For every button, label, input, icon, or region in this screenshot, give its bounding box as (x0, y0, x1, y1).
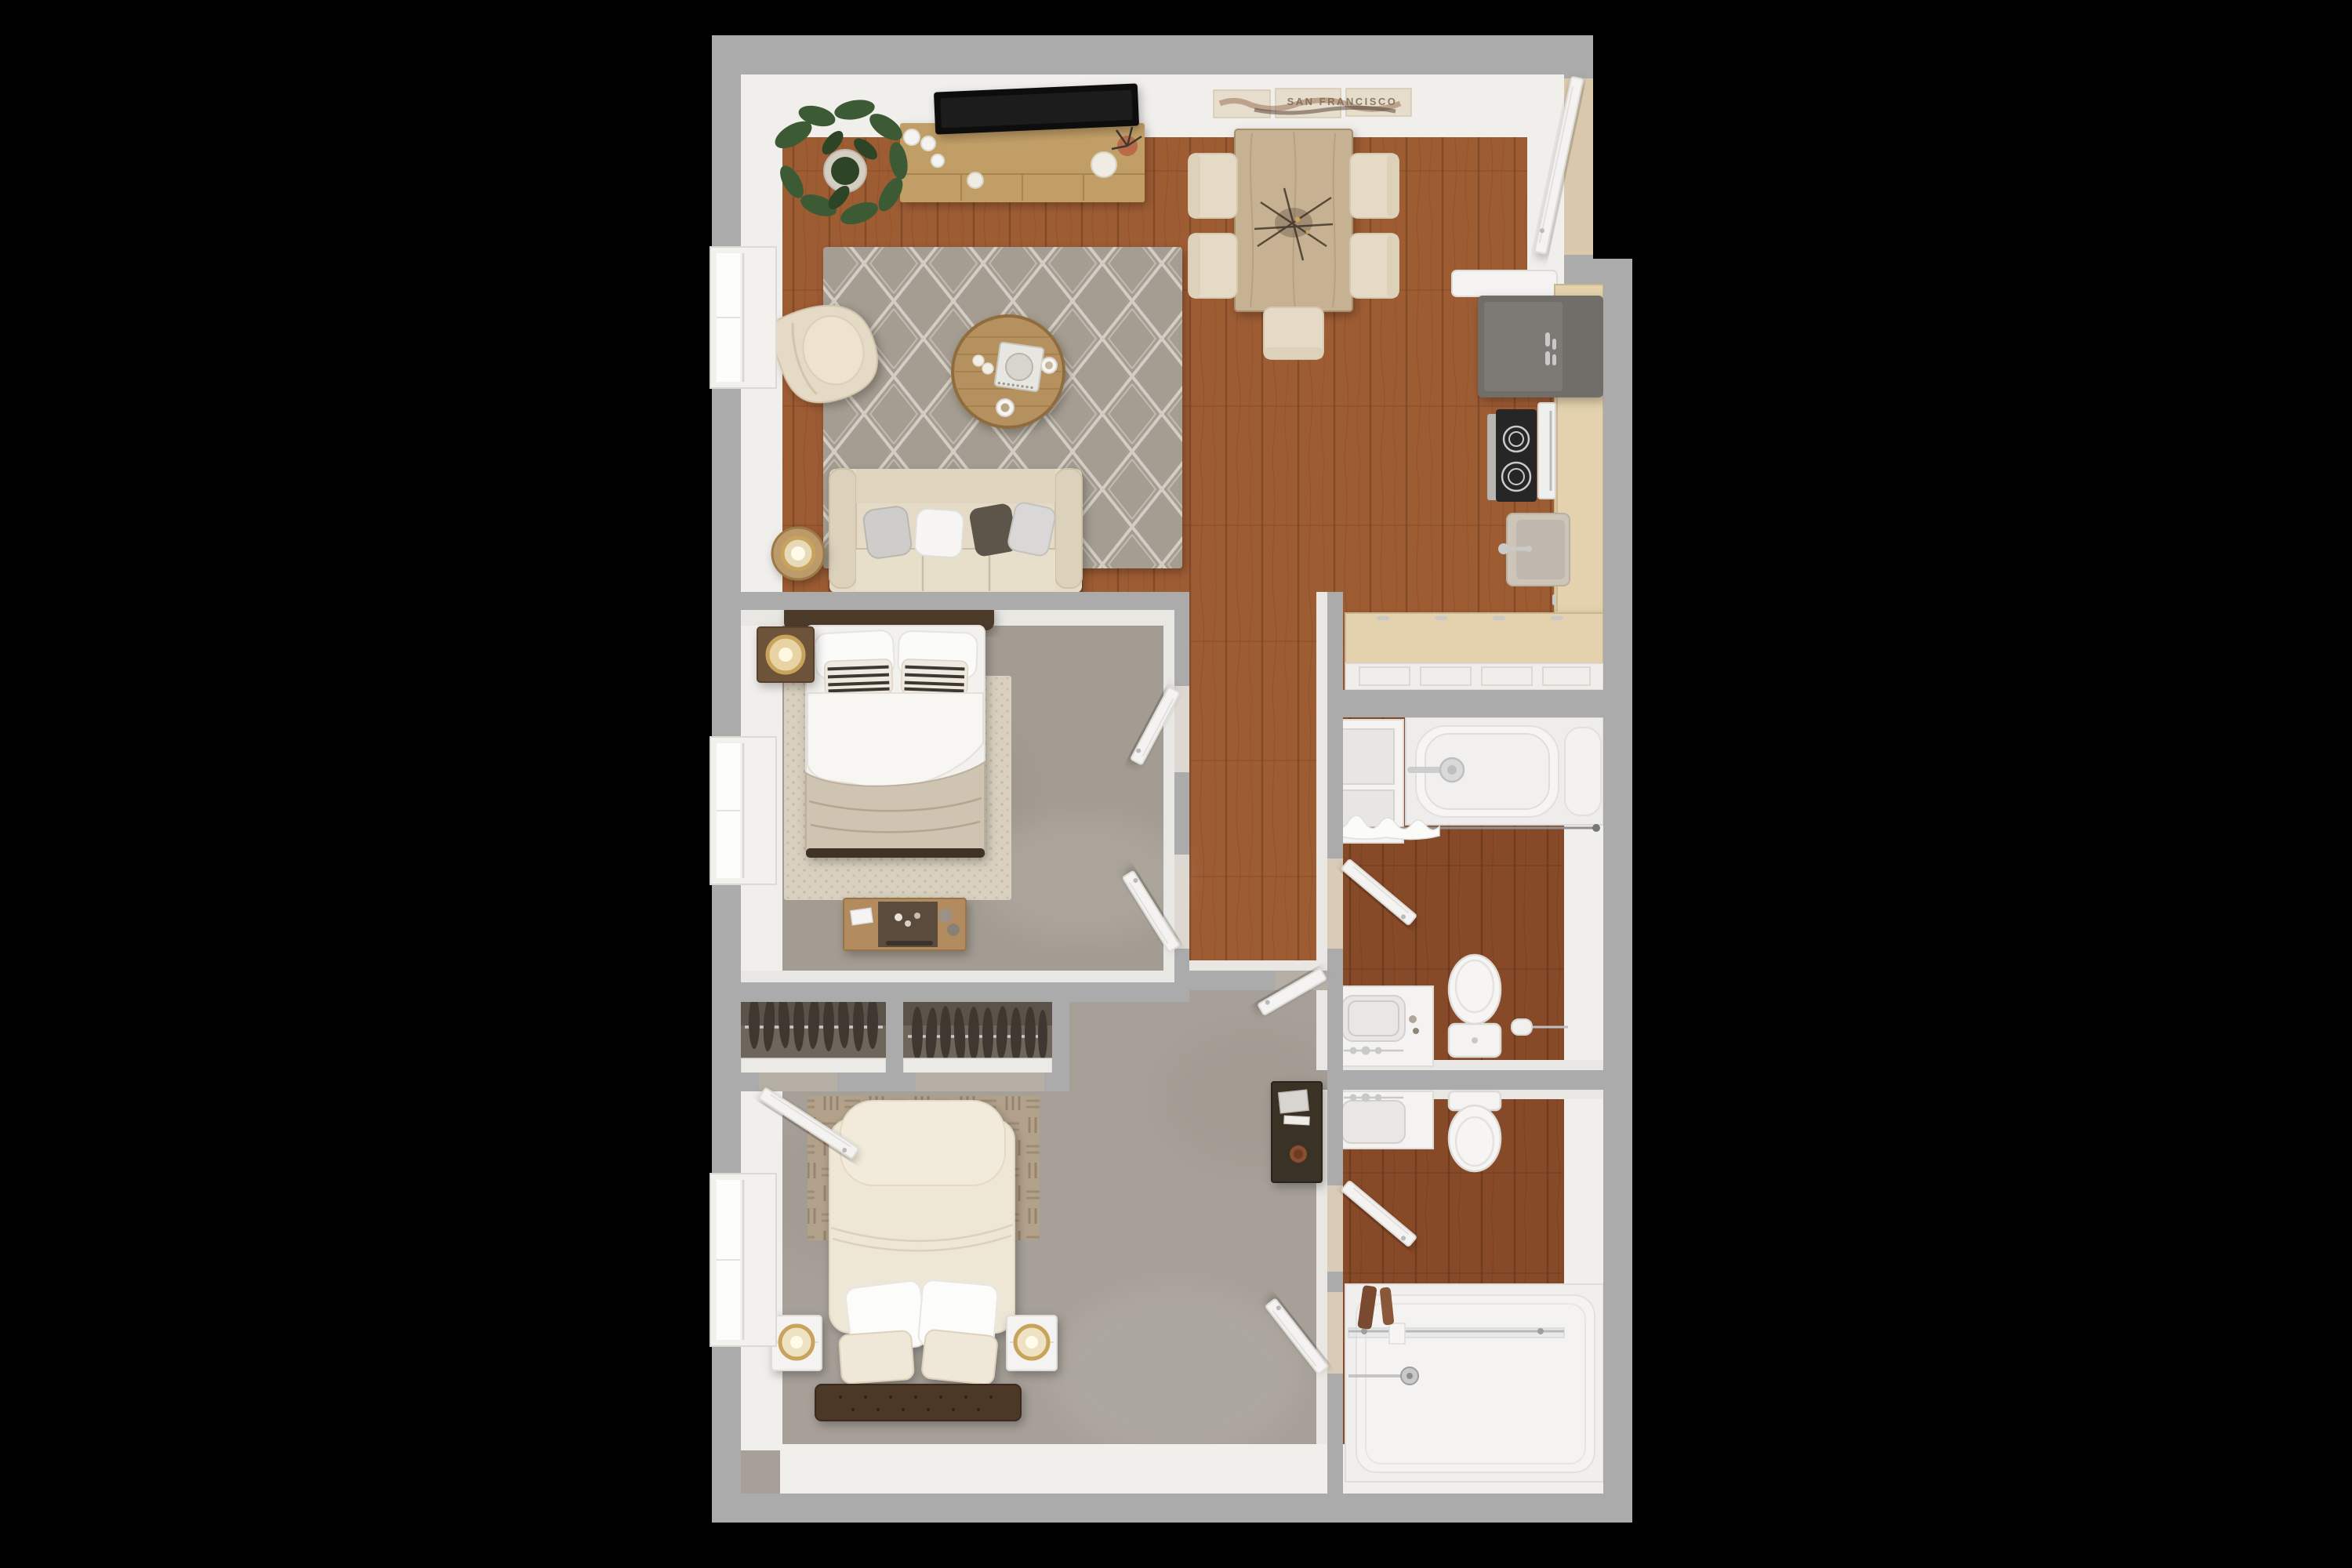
walk-in-shower (1345, 1284, 1603, 1482)
cabinet-handle (1552, 594, 1556, 605)
cup-and-saucer (1041, 358, 1057, 373)
bedroom-1-window (710, 737, 776, 884)
books (1279, 1090, 1309, 1113)
dining-chair (1264, 307, 1323, 359)
cookie (982, 363, 993, 374)
drawer-handle (1377, 616, 1389, 620)
door-threshold (1174, 855, 1189, 949)
fridge-handle (1545, 332, 1550, 347)
screenshot-canvas: SAN FRANCISCO (0, 0, 2352, 1568)
shower-glass-panel (1348, 1328, 1564, 1338)
bathroom-1-toilet (1449, 955, 1501, 1057)
striped-pillow (824, 659, 892, 696)
cookie (973, 355, 984, 366)
round-tray (1091, 152, 1116, 177)
closet-sill (741, 1058, 886, 1074)
peninsula-counter (1345, 613, 1603, 690)
pillow (921, 1329, 998, 1385)
hangers-left (749, 995, 878, 1052)
vanity-faucet (1362, 1094, 1370, 1102)
decor-sphere (947, 924, 960, 936)
books (1284, 1116, 1309, 1125)
cabinet-handle (1552, 339, 1556, 350)
door-threshold (1327, 858, 1343, 949)
bed-bench (815, 1385, 1021, 1421)
bathroom-2-vanity (1329, 1091, 1433, 1149)
vanity-faucet (1362, 1047, 1370, 1055)
coffee-table (953, 316, 1064, 427)
kitchen-sink (1498, 514, 1570, 586)
drawer-handle (1435, 616, 1447, 620)
door-threshold (1327, 1185, 1343, 1272)
decor-sphere (938, 909, 953, 923)
door-threshold (916, 1073, 1044, 1091)
dining-chair (1189, 154, 1237, 218)
dining-table (1235, 129, 1352, 311)
fridge-handle (1545, 351, 1550, 365)
door-threshold (759, 1073, 837, 1091)
dining-chair (1350, 234, 1399, 298)
bathtub (1406, 717, 1603, 825)
side-table-with-lamp (772, 528, 824, 579)
serving-tray (994, 342, 1044, 391)
living-room (765, 83, 1182, 593)
books (851, 908, 873, 924)
bedroom-1-bed (806, 626, 985, 858)
pillow (839, 1330, 914, 1384)
door-threshold (1327, 1292, 1343, 1374)
bedroom-2-window (710, 1174, 776, 1346)
cup-and-saucer (996, 399, 1014, 416)
bathroom-1-vanity (1329, 986, 1433, 1066)
bedroom-2-nightstand (1007, 1316, 1057, 1370)
wall-art-san-francisco: SAN FRANCISCO (1214, 89, 1411, 118)
bedroom-1 (757, 604, 1011, 950)
vase (931, 154, 944, 167)
tv-console (900, 123, 1145, 202)
striped-pillow (901, 659, 967, 696)
bathroom-2-toilet (1449, 1091, 1501, 1171)
vase (904, 129, 920, 145)
tv (934, 83, 1139, 134)
bedroom-1-nightstand (757, 627, 814, 682)
vase (921, 136, 935, 151)
drawer-handle (1493, 616, 1505, 620)
floor-plan-render: SAN FRANCISCO (0, 0, 2352, 1568)
drawer-handle (1551, 616, 1563, 620)
closet-sill (903, 1058, 1052, 1074)
bedroom-2-desk (1272, 1082, 1322, 1182)
refrigerator (1478, 296, 1603, 397)
throw-pillow (862, 505, 913, 559)
sofa (829, 469, 1082, 593)
dining-chair (1350, 154, 1399, 218)
bedroom-1-dresser (844, 898, 966, 950)
counter-return (1452, 270, 1557, 296)
cooktop-range (1487, 403, 1555, 502)
dish (967, 172, 983, 188)
cabinet-handle (1552, 354, 1556, 365)
living-room-window (710, 247, 776, 388)
wall-art-text: SAN FRANCISCO (1287, 96, 1398, 107)
bedroom-2-nightstand (771, 1316, 822, 1370)
throw-pillow (914, 508, 964, 558)
dining-chair (1189, 234, 1237, 298)
oven-door (1538, 403, 1555, 499)
